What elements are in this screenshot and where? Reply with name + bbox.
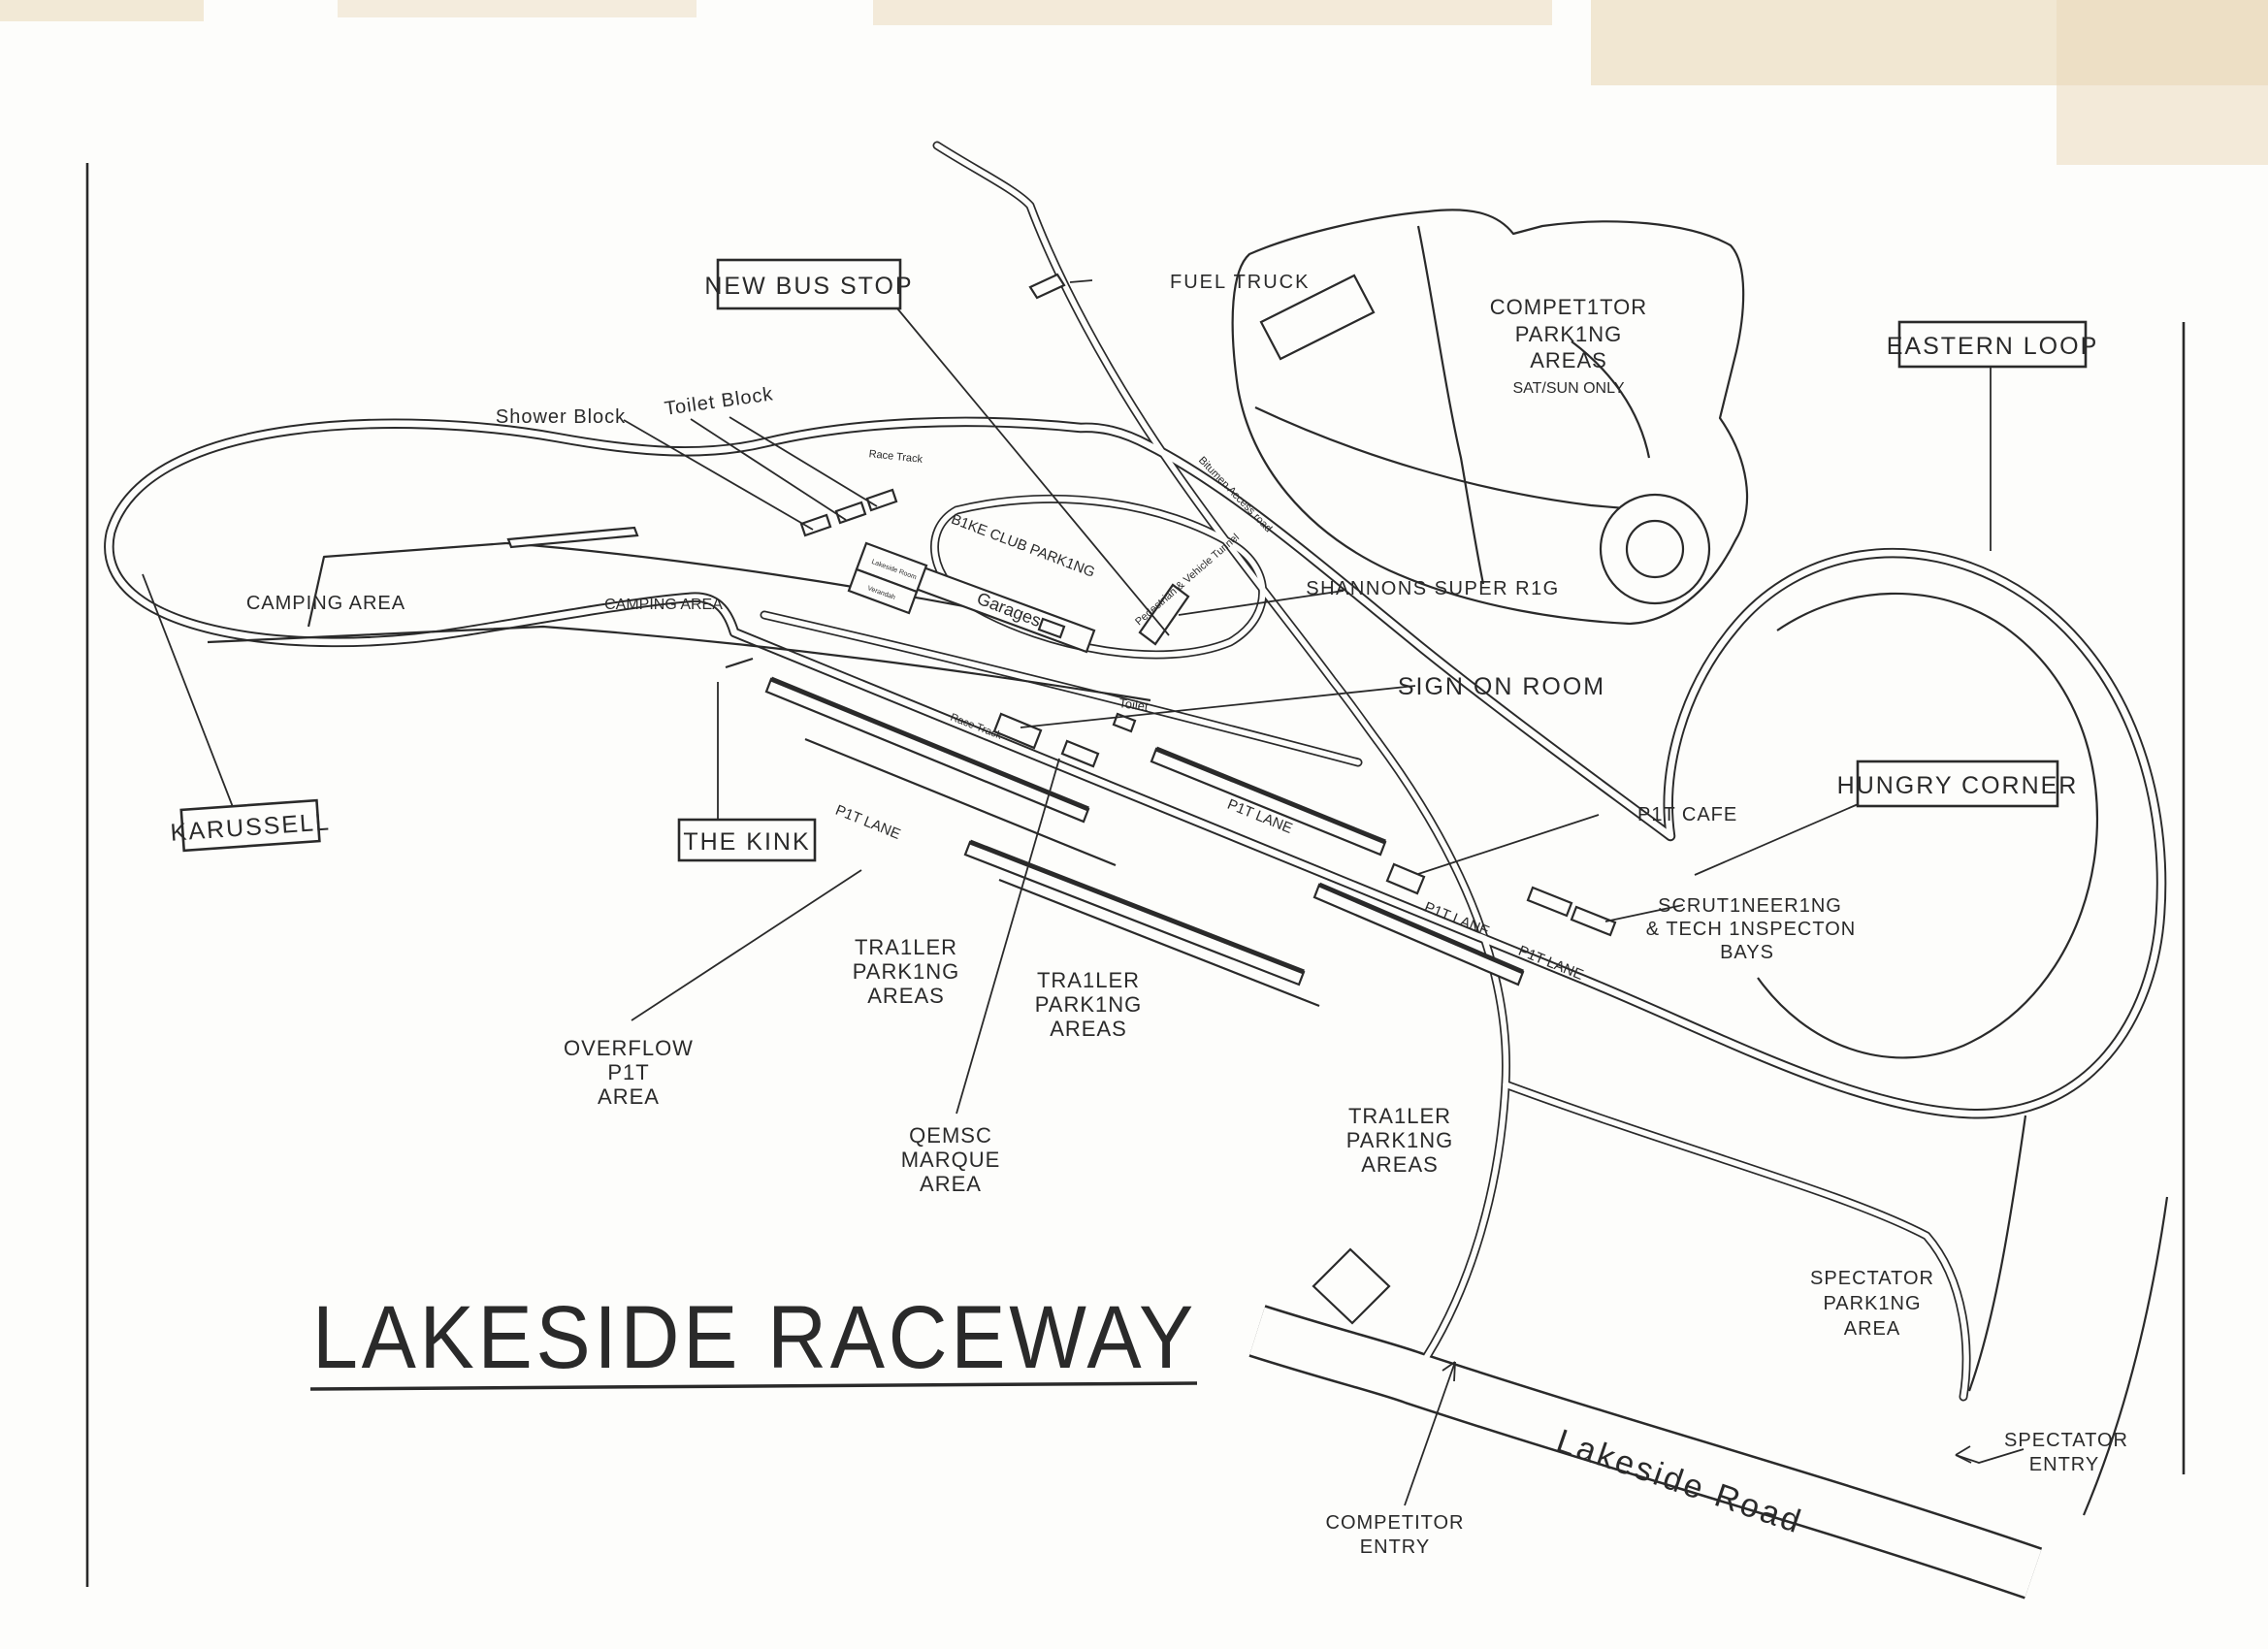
pit-lane-label: P1T LANE bbox=[833, 802, 903, 843]
svg-text:SAT/SUN ONLY: SAT/SUN ONLY bbox=[1513, 380, 1625, 397]
boxed-label-new-bus-stop: NEW BUS STOP bbox=[704, 260, 913, 308]
overflow-pit-label: OVERFLOW P1T AREA bbox=[564, 1036, 694, 1109]
competitor-entry-building bbox=[1313, 1249, 1389, 1323]
the-kink-label: THE KINK bbox=[683, 828, 810, 856]
raceway-map: NEW BUS STOP EASTERN LOOP KARUSSELL THE … bbox=[0, 0, 2268, 1649]
toilet-block-building bbox=[836, 502, 865, 523]
svg-text:P1T: P1T bbox=[607, 1060, 649, 1084]
svg-text:PARK1NG: PARK1NG bbox=[1035, 992, 1143, 1017]
svg-text:COMPETITOR: COMPETITOR bbox=[1326, 1512, 1465, 1534]
scrutineering-label: & TECH 1NSPECTON bbox=[1646, 919, 1856, 940]
race-track-north-label: Race Track bbox=[868, 448, 923, 466]
trailer-parking-label-west: TRA1LER PARK1NG AREAS bbox=[853, 935, 960, 1008]
svg-text:SPECTATOR: SPECTATOR bbox=[2004, 1430, 2128, 1451]
competitor-entry-label: COMPETITOR ENTRY bbox=[1326, 1512, 1465, 1558]
competitor-parking-label: COMPET1TOR PARK1NG AREAS SAT/SUN ONLY bbox=[1490, 295, 1647, 397]
sign-on-room-label: SIGN ON ROOM bbox=[1398, 673, 1605, 700]
svg-text:AREA: AREA bbox=[598, 1084, 660, 1109]
eastern-loop-label: EASTERN LOOP bbox=[1887, 333, 2099, 360]
boxed-label-the-kink: THE KINK bbox=[679, 820, 815, 860]
svg-text:PARK1NG: PARK1NG bbox=[1823, 1293, 1921, 1314]
boxed-label-eastern-loop: EASTERN LOOP bbox=[1887, 322, 2099, 367]
shannons-super-rig-label: SHANNONS SUPER R1G bbox=[1306, 578, 1560, 599]
page-title: LAKESIDE RACEWAY bbox=[312, 1288, 1197, 1387]
svg-text:PARK1NG: PARK1NG bbox=[853, 959, 960, 984]
pit-lane-label: P1T LANE bbox=[1516, 943, 1586, 984]
svg-text:TRA1LER: TRA1LER bbox=[855, 935, 957, 959]
trailer-parking-label-east: TRA1LER PARK1NG AREAS bbox=[1346, 1104, 1454, 1177]
svg-text:MARQUE: MARQUE bbox=[901, 1148, 1001, 1172]
roundabout-inner bbox=[1627, 521, 1683, 577]
fuel-truck-label: FUEL TRUCK bbox=[1170, 272, 1310, 293]
scrutineering-label: BAYS bbox=[1720, 942, 1774, 963]
spectator-parking-label: SPECTATOR PARK1NG AREA bbox=[1810, 1268, 1934, 1340]
raceway-map-page: NEW BUS STOP EASTERN LOOP KARUSSELL THE … bbox=[0, 0, 2268, 1649]
hungry-corner-label: HUNGRY CORNER bbox=[1837, 772, 2079, 799]
scrutineering-label: SCRUT1NEER1NG bbox=[1658, 895, 1842, 917]
svg-text:OVERFLOW: OVERFLOW bbox=[564, 1036, 694, 1060]
svg-text:AREAS: AREAS bbox=[1530, 348, 1607, 372]
shower-block-label: Shower Block bbox=[496, 406, 626, 428]
camping-area-west-label: CAMPING AREA bbox=[246, 593, 405, 614]
pit-cafe-building bbox=[1387, 864, 1424, 893]
svg-text:QEMSC: QEMSC bbox=[909, 1123, 992, 1148]
svg-text:ENTRY: ENTRY bbox=[1360, 1536, 1430, 1558]
camping-area-east-label: CAMPING AREA bbox=[604, 597, 723, 613]
spectator-entry-label: SPECTATOR ENTRY bbox=[2004, 1430, 2128, 1475]
qemsc-marque-label: QEMSC MARQUE AREA bbox=[901, 1123, 1001, 1196]
fuel-truck-marker bbox=[1030, 275, 1064, 298]
svg-text:COMPET1TOR: COMPET1TOR bbox=[1490, 295, 1647, 319]
svg-text:TRA1LER: TRA1LER bbox=[1348, 1104, 1451, 1128]
control-building bbox=[1062, 741, 1098, 766]
svg-text:AREA: AREA bbox=[1844, 1318, 1900, 1340]
svg-text:PARK1NG: PARK1NG bbox=[1515, 322, 1623, 346]
svg-text:AREAS: AREAS bbox=[867, 984, 945, 1008]
svg-text:SPECTATOR: SPECTATOR bbox=[1810, 1268, 1934, 1289]
svg-text:AREAS: AREAS bbox=[1361, 1152, 1439, 1177]
scrutineering-bay bbox=[1528, 888, 1571, 916]
toilet-label: Toilet bbox=[1118, 695, 1150, 714]
new-bus-stop-label: NEW BUS STOP bbox=[704, 273, 913, 300]
svg-text:TRA1LER: TRA1LER bbox=[1037, 968, 1140, 992]
pit-cafe-label: P1T CAFE bbox=[1637, 804, 1737, 825]
svg-text:AREA: AREA bbox=[920, 1172, 982, 1196]
svg-text:PARK1NG: PARK1NG bbox=[1346, 1128, 1454, 1152]
svg-text:AREAS: AREAS bbox=[1050, 1017, 1127, 1041]
svg-text:ENTRY: ENTRY bbox=[2029, 1454, 2099, 1475]
map-title: LAKESIDE RACEWAY bbox=[310, 1288, 1197, 1389]
trailer-parking-label-mid: TRA1LER PARK1NG AREAS bbox=[1035, 968, 1143, 1041]
boxed-label-karussell: KARUSSELL bbox=[169, 799, 332, 851]
boxed-label-hungry-corner: HUNGRY CORNER bbox=[1837, 761, 2079, 806]
toilet-block-label: Toilet Block bbox=[664, 383, 775, 420]
toilet-block-building bbox=[867, 490, 896, 510]
